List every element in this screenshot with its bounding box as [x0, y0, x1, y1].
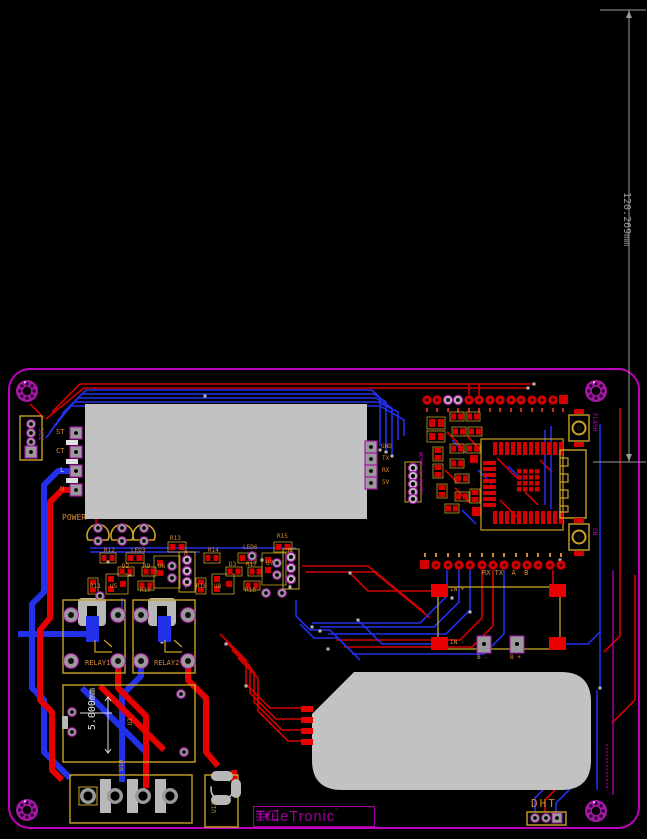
pad-label-5v: 5V [382, 480, 389, 486]
flash-button[interactable] [569, 409, 589, 447]
pad-label-tx: TX [382, 456, 389, 462]
refdes-r15: R15 [277, 534, 288, 540]
refdes-led3: LED3 [131, 548, 145, 554]
refdes-u8: U8 [214, 584, 221, 590]
in-plus-label: IN + [450, 587, 464, 593]
flash-label: FLASH [591, 413, 597, 431]
pcb-canvas[interactable]: 120.269mm I2C ST CT L N GND TX RX 5V FLA… [0, 0, 647, 839]
pad-label-l: L [60, 467, 64, 474]
refdes-r10: R10 [140, 588, 151, 594]
pad-label-n: N [60, 486, 64, 493]
serial-pads[interactable] [365, 441, 377, 489]
refdes-r14: R14 [208, 548, 219, 554]
relay1-label: RELAY1 [85, 660, 110, 667]
in-minus-label: IN - [450, 640, 464, 646]
b-minus-label: B - [477, 655, 488, 661]
en-label: EN [591, 528, 597, 535]
header1-h-label: H [184, 551, 188, 557]
pad-label-ct: CT [56, 448, 64, 455]
dht-label: DHT [531, 798, 557, 809]
truetronic-tm: ™ [335, 808, 338, 814]
pad-label-rx: RX [382, 468, 389, 474]
i2c-label: I2C [39, 428, 46, 441]
battery-body[interactable] [312, 672, 591, 790]
pad-label-st: ST [56, 429, 64, 436]
relay2-label: RELAY2 [154, 660, 179, 667]
truetronic-logo-icon [254, 807, 280, 825]
refdes-u10: U10 [119, 760, 125, 771]
refdes-r17: R17 [246, 562, 257, 568]
power-label: POWER [62, 514, 86, 522]
b-plus-label: B + [510, 655, 521, 661]
refdes-r16: R16 [196, 584, 207, 590]
refdes-u7: U7 [266, 561, 273, 567]
header2-h-label: H [288, 548, 292, 554]
refdes-r13: R13 [170, 536, 181, 542]
refdes-r18: R18 [245, 588, 256, 594]
refdes-u3: U3 [128, 718, 134, 725]
refdes-u12: U12 [212, 802, 218, 813]
header2-t-label: T [288, 582, 292, 588]
refdes-r11: R11 [90, 584, 101, 590]
en-button[interactable] [569, 518, 589, 556]
refdes-r9: R9 [143, 564, 150, 570]
header1-t-label: T [184, 585, 188, 591]
refdes-led6: LED6 [243, 545, 257, 551]
refdes-r12: R12 [104, 548, 115, 554]
module-dimension-text: 5.000mm [88, 688, 98, 730]
uart-note-label: RX TX A B [482, 570, 528, 577]
pad-label-gnd: GND [381, 444, 392, 450]
refdes-d3: D3 [229, 562, 236, 568]
truetronic-logo: TrueTronic ™ [253, 806, 375, 827]
refdes-u6: U6 [158, 564, 165, 570]
esp-note-label: WEMOS 32 RX/TX [417, 452, 422, 494]
dimension-text: 120.269mm [621, 192, 631, 246]
refdes-u5: U5 [110, 584, 117, 590]
refdes-d2: D2 [122, 564, 129, 570]
lcd-module-body[interactable] [85, 404, 367, 519]
